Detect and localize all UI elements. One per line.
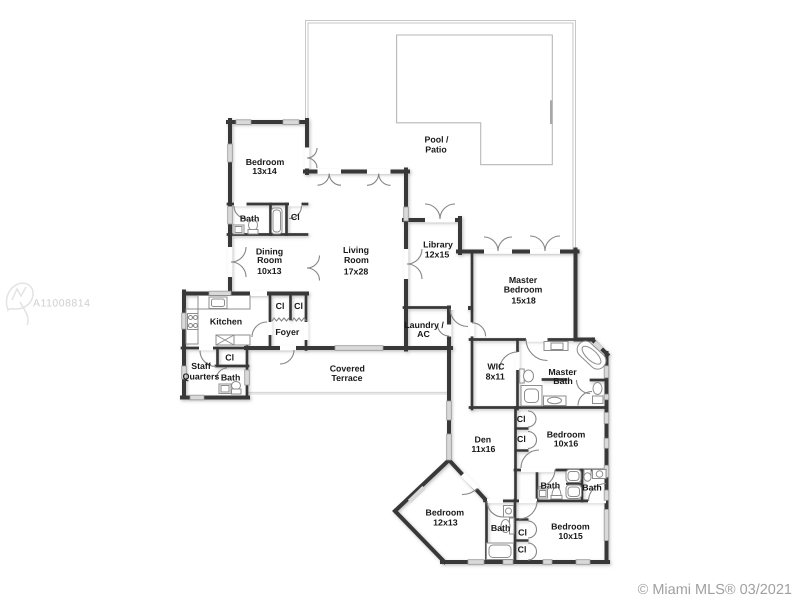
- svg-text:Terrace: Terrace: [331, 373, 362, 383]
- svg-text:Bedroom: Bedroom: [504, 285, 543, 295]
- svg-text:A11008814: A11008814: [33, 297, 90, 309]
- svg-text:Library: Library: [423, 240, 453, 250]
- svg-text:Pool /: Pool /: [425, 134, 450, 144]
- svg-text:13x14: 13x14: [252, 166, 277, 176]
- svg-text:Room: Room: [344, 255, 369, 265]
- svg-text:Bath: Bath: [240, 214, 260, 224]
- svg-text:Bath: Bath: [553, 376, 573, 386]
- svg-text:Cl: Cl: [517, 414, 526, 424]
- svg-text:11x16: 11x16: [471, 444, 495, 454]
- svg-text:17x28: 17x28: [344, 266, 369, 276]
- svg-text:Master: Master: [509, 275, 538, 285]
- svg-text:Cl: Cl: [517, 434, 526, 444]
- svg-text:10x13: 10x13: [257, 266, 282, 276]
- svg-text:Cl: Cl: [518, 545, 527, 555]
- svg-text:Staff: Staff: [191, 361, 211, 371]
- svg-text:WIC: WIC: [487, 362, 505, 372]
- svg-text:Kitchen: Kitchen: [210, 317, 242, 327]
- svg-text:12x13: 12x13: [433, 518, 458, 528]
- svg-text:Living: Living: [343, 245, 369, 255]
- svg-text:Cl: Cl: [291, 212, 300, 222]
- svg-text:© Miami MLS® 03/2021: © Miami MLS® 03/2021: [638, 582, 792, 598]
- svg-text:12x15: 12x15: [425, 250, 450, 260]
- svg-text:Covered: Covered: [330, 363, 365, 373]
- svg-text:Room: Room: [257, 255, 282, 265]
- svg-text:8x11: 8x11: [486, 372, 505, 382]
- svg-text:Bath: Bath: [491, 523, 511, 533]
- svg-text:Cl: Cl: [225, 352, 234, 362]
- svg-text:Bedroom: Bedroom: [425, 508, 464, 518]
- svg-text:Cl: Cl: [276, 301, 285, 311]
- svg-text:Bath: Bath: [541, 481, 561, 491]
- svg-text:Bath: Bath: [221, 373, 241, 383]
- svg-text:Patio: Patio: [425, 145, 447, 155]
- svg-text:AC: AC: [417, 329, 430, 339]
- svg-text:Cl: Cl: [518, 528, 527, 538]
- svg-text:15x18: 15x18: [511, 295, 536, 305]
- svg-text:10x16: 10x16: [554, 439, 579, 449]
- svg-text:Bath: Bath: [582, 483, 602, 493]
- svg-text:Quarters: Quarters: [183, 372, 220, 382]
- svg-text:Foyer: Foyer: [275, 327, 300, 337]
- svg-text:10x15: 10x15: [558, 531, 583, 541]
- svg-text:Bedroom: Bedroom: [551, 521, 590, 531]
- svg-text:Cl: Cl: [294, 301, 303, 311]
